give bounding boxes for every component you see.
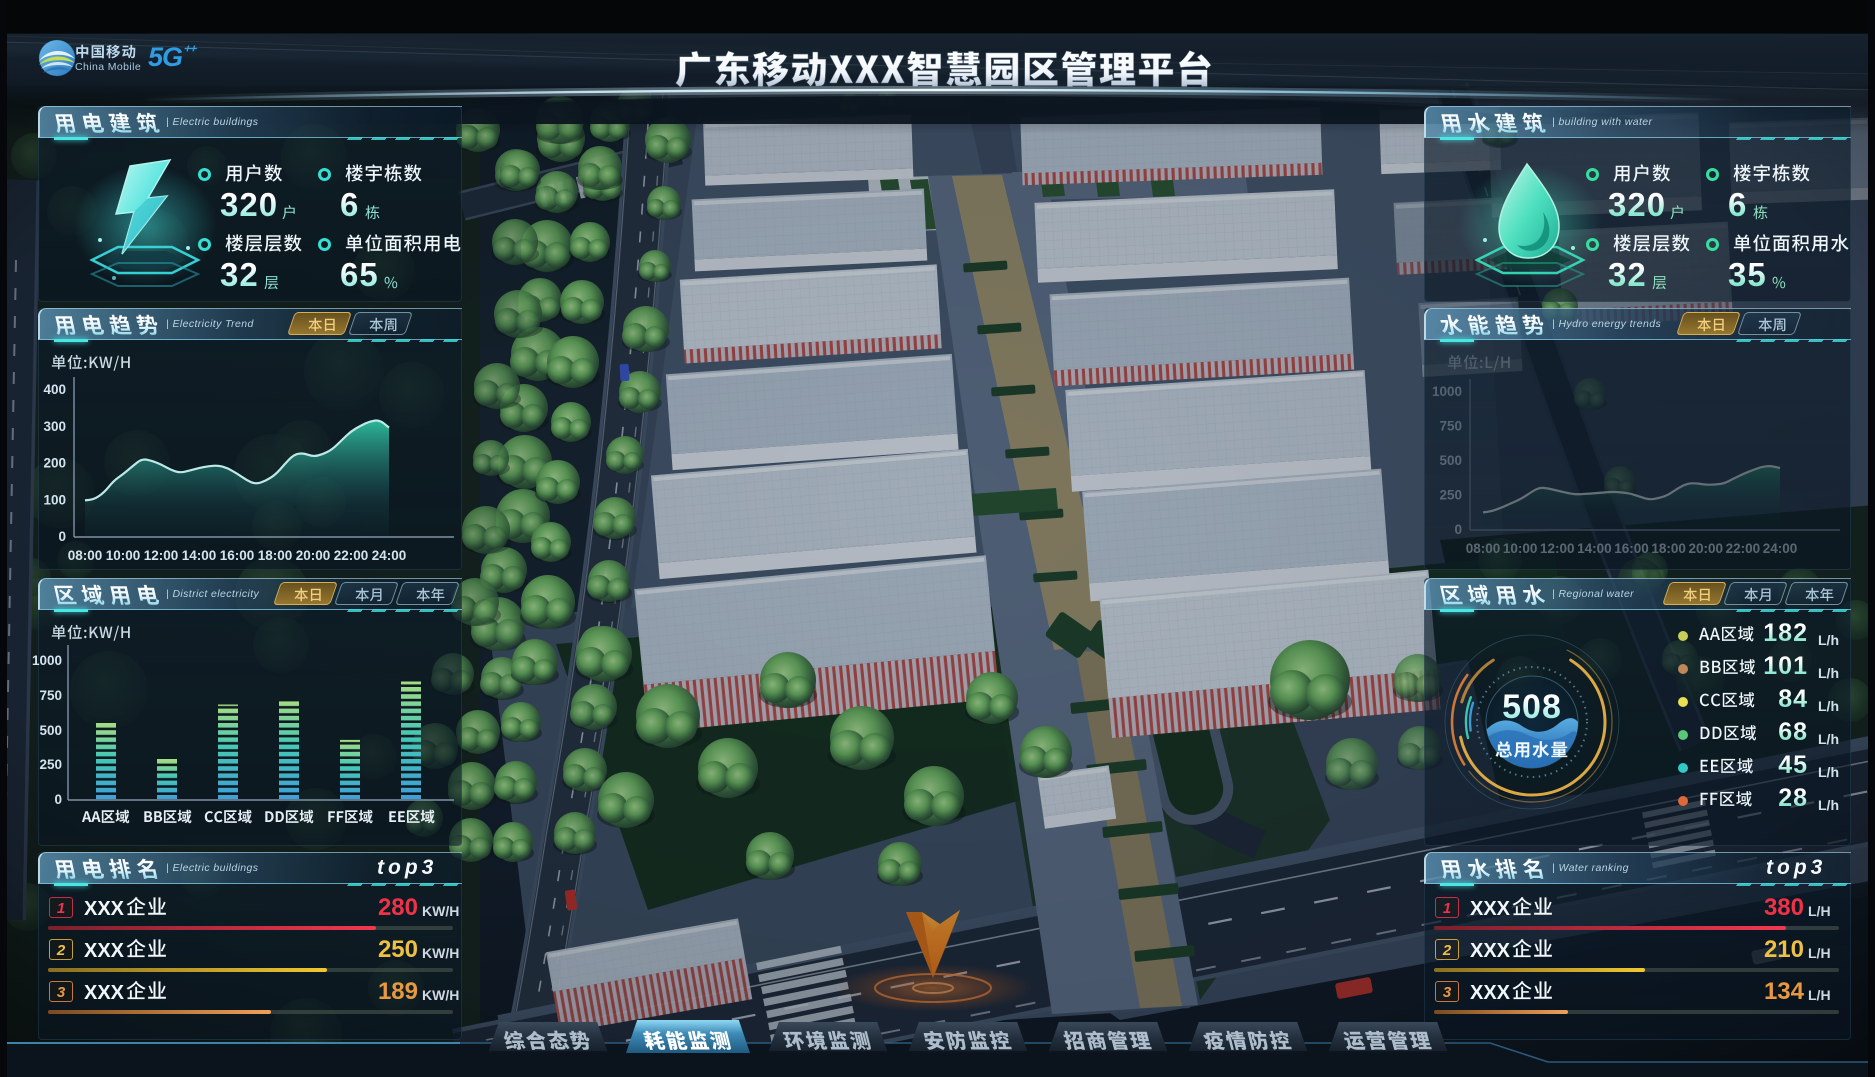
svg-text:08:00: 08:00 xyxy=(68,548,103,563)
svg-text:1000: 1000 xyxy=(32,653,62,668)
svg-text:300: 300 xyxy=(43,419,66,434)
svg-text:200: 200 xyxy=(43,456,66,471)
svg-text:0: 0 xyxy=(54,792,62,807)
svg-text:0: 0 xyxy=(58,529,66,544)
svg-text:22:00: 22:00 xyxy=(334,548,369,563)
svg-text:100: 100 xyxy=(43,492,66,507)
svg-text:10:00: 10:00 xyxy=(106,548,141,563)
svg-text:250: 250 xyxy=(39,757,62,772)
svg-text:14:00: 14:00 xyxy=(182,548,217,563)
svg-text:20:00: 20:00 xyxy=(296,548,331,563)
svg-text:750: 750 xyxy=(39,688,62,703)
svg-text:16:00: 16:00 xyxy=(220,548,255,563)
svg-text:18:00: 18:00 xyxy=(258,548,293,563)
svg-text:12:00: 12:00 xyxy=(144,548,179,563)
svg-text:24:00: 24:00 xyxy=(372,548,407,563)
svg-text:500: 500 xyxy=(39,723,62,738)
svg-text:400: 400 xyxy=(43,382,66,397)
